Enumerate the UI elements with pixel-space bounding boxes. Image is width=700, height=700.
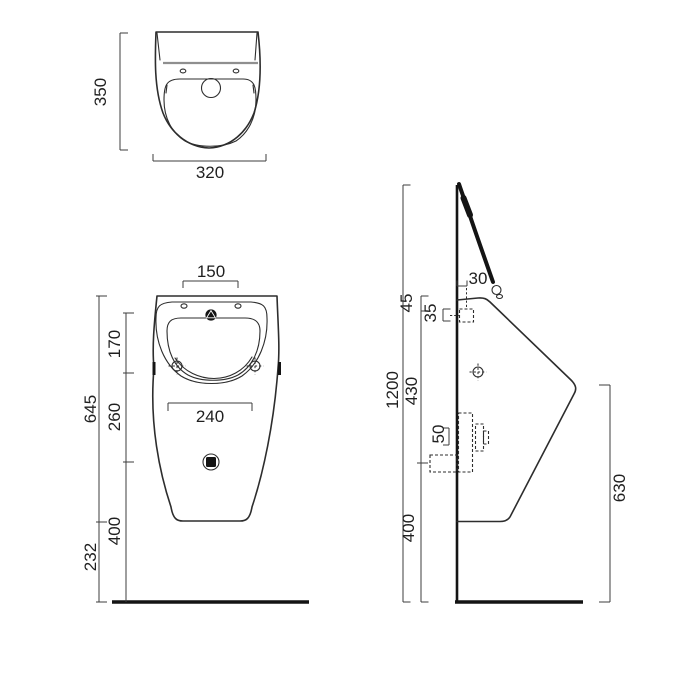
dim-line xyxy=(457,281,467,287)
dim-label-630: 630 xyxy=(610,474,629,502)
front-view-hole-left xyxy=(181,304,187,308)
outlet-flange-dashed xyxy=(476,424,484,451)
outlet-pipe-dashed xyxy=(459,413,473,472)
inlet-pipe-connector xyxy=(464,198,471,215)
dim-label-50: 50 xyxy=(429,425,448,444)
inlet-pipe-nut xyxy=(497,295,503,299)
top-view-inlet-circle xyxy=(202,79,221,98)
drain-square xyxy=(206,457,216,467)
dim-label-170: 170 xyxy=(105,330,124,358)
dim-line xyxy=(183,281,238,288)
dim-line xyxy=(417,311,429,602)
dim-line xyxy=(599,385,610,602)
dim-label-35: 35 xyxy=(421,304,440,323)
side-view: 30 45 35 1200 430 400 50 630 xyxy=(383,184,629,602)
dim-label-320: 320 xyxy=(196,163,224,182)
technical-drawing-page: 350 320 xyxy=(0,0,700,700)
outlet-cap-dashed xyxy=(484,431,489,444)
top-view-tick-right xyxy=(253,85,254,93)
dim-label-350: 350 xyxy=(91,78,110,106)
dim-label-1200: 1200 xyxy=(383,371,402,409)
dim-label-400-side: 400 xyxy=(399,514,418,542)
top-view-hole-left xyxy=(180,69,186,73)
side-profile xyxy=(457,298,576,522)
dim-line xyxy=(443,309,451,321)
front-view-body xyxy=(112,296,309,602)
dim-label-400-front: 400 xyxy=(105,517,124,545)
top-view-corner-edge-right xyxy=(255,33,257,60)
dim-top-height: 350 xyxy=(91,33,128,150)
fixing-hole-side xyxy=(470,364,487,381)
dim-label-45: 45 xyxy=(397,294,416,313)
top-view-hole-right xyxy=(233,69,239,73)
dim-front-inner-chain: 170 260 400 xyxy=(105,313,134,602)
dim-front-fixing-centres: 240 xyxy=(168,403,252,426)
dim-front-outer-chain: 645 232 xyxy=(81,296,107,602)
dim-side-35: 35 xyxy=(421,304,451,323)
dim-top-width: 320 xyxy=(153,154,266,182)
dim-label-232: 232 xyxy=(81,543,100,571)
front-view-water-edge xyxy=(175,357,252,379)
top-view-corner-edge-left xyxy=(157,33,160,60)
dim-label-260: 260 xyxy=(105,403,124,431)
side-view-body xyxy=(430,184,583,602)
dim-side-wall-offset: 30 xyxy=(457,269,487,308)
wall-fixing-dashed xyxy=(460,309,474,322)
top-view-outer-outline xyxy=(155,32,260,148)
front-view-hole-right xyxy=(235,304,241,308)
dim-front-inlet-centres: 150 xyxy=(183,262,238,288)
dim-label-30: 30 xyxy=(469,269,488,288)
dim-label-645: 645 xyxy=(81,395,100,423)
front-view-bowl xyxy=(167,318,260,380)
dim-side-50: 50 xyxy=(429,425,449,445)
dim-label-240: 240 xyxy=(196,407,224,426)
dim-label-430: 430 xyxy=(402,377,421,405)
dim-side-630: 630 xyxy=(599,385,629,602)
urinal-dimension-drawing: 350 320 xyxy=(0,0,700,700)
dim-label-150: 150 xyxy=(197,262,225,281)
top-view-body xyxy=(155,32,260,148)
top-view-inner-rim xyxy=(164,79,256,146)
dim-line xyxy=(123,313,134,602)
inlet-pipe-hook xyxy=(492,286,501,295)
waste-pipe-dashed xyxy=(430,455,457,472)
dim-line xyxy=(153,154,266,161)
dim-line xyxy=(120,33,128,150)
top-view: 350 320 xyxy=(91,32,266,182)
front-view: 150 240 645 232 170 260 400 xyxy=(81,262,309,602)
